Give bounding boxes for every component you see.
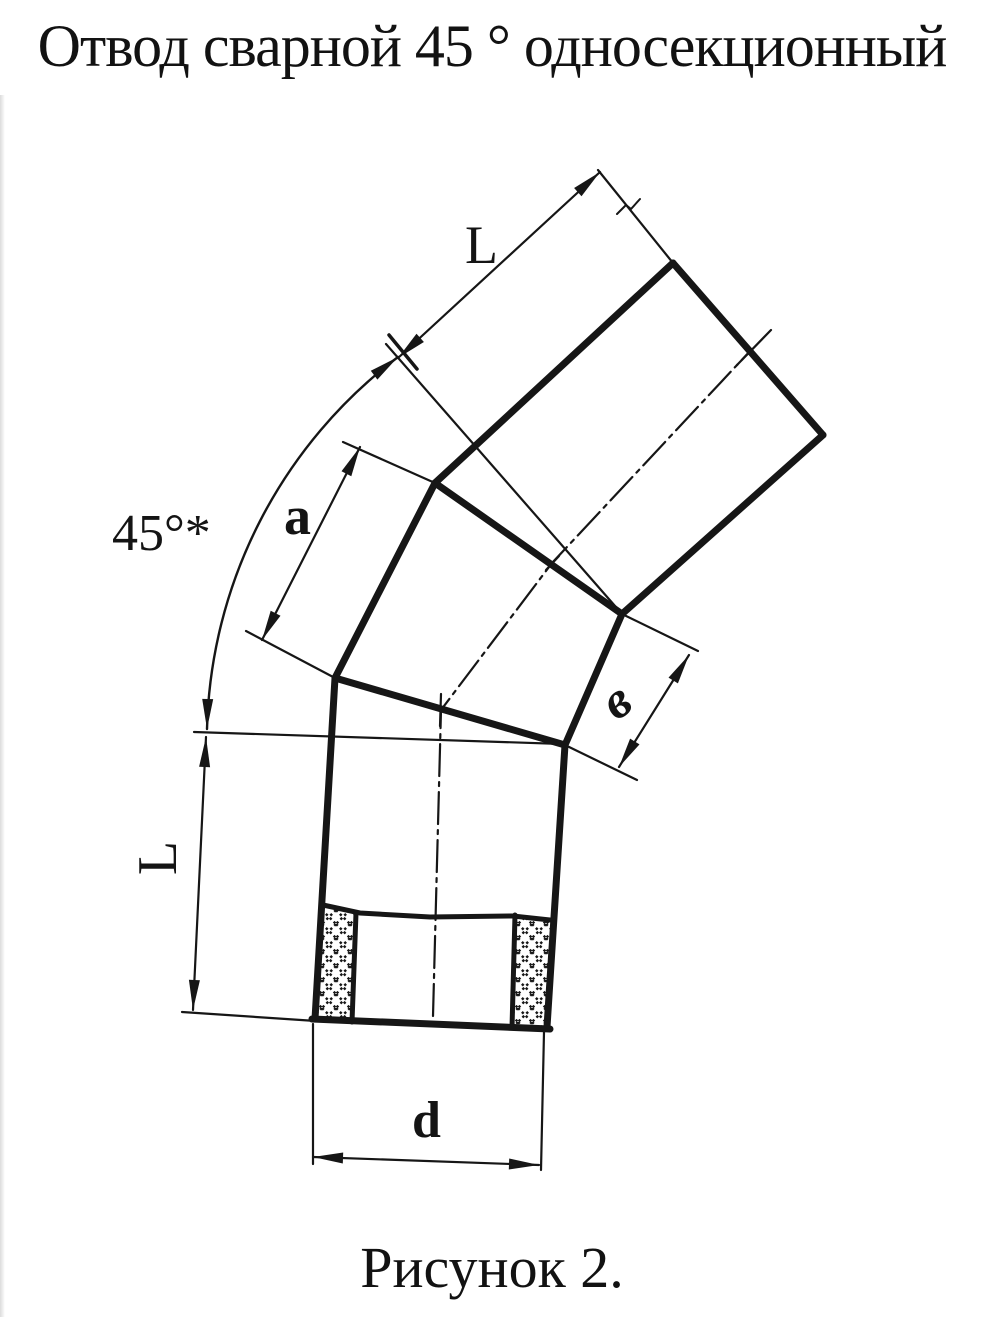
extension-line: [598, 170, 673, 263]
dimension-line: [262, 447, 360, 640]
socket-inner-wall-right: [512, 915, 515, 1028]
label-diameter-d: d: [412, 1092, 441, 1149]
label-length-top: L: [465, 215, 498, 275]
figure-caption: Рисунок 2.: [0, 1234, 984, 1301]
scanned-drawing-page: Отвод сварной 45 ° односекционный: [0, 0, 984, 1317]
elbow-drawing: L 45°* a в L d: [0, 0, 984, 1317]
extension-squiggle: [617, 199, 640, 214]
label-length-left: L: [127, 841, 189, 875]
upper-pipe-outline: [435, 263, 823, 614]
label-segment-end-v: в: [591, 671, 643, 731]
label-angle-45: 45°*: [112, 505, 211, 562]
arrowhead: [371, 357, 398, 380]
extension-line-bottom: [182, 1012, 316, 1021]
arrowhead: [342, 447, 361, 476]
extension-line: [246, 631, 335, 678]
centerline: [433, 330, 771, 1016]
socket-wall-hatch-left: [316, 906, 356, 1022]
middle-segment-outline: [335, 483, 622, 745]
dimension-a: [246, 442, 435, 678]
arrowhead: [199, 737, 210, 767]
arrowhead: [189, 980, 200, 1010]
dimension-line: [398, 172, 600, 358]
arrowhead: [202, 699, 213, 729]
dimension-label-group: L 45°* a в L d: [112, 215, 642, 1149]
extension-line-long: [386, 344, 622, 614]
arrowhead: [669, 655, 690, 683]
extension-line: [622, 614, 698, 651]
arrowhead: [619, 739, 640, 767]
arrowhead: [262, 611, 281, 640]
extension-line-top: [194, 732, 563, 744]
dimension-line: [313, 1157, 539, 1165]
extension-line-right: [541, 1032, 544, 1170]
label-segment-side-a: a: [284, 486, 311, 546]
weld-seam-lower: [335, 678, 565, 745]
dimension-L-left: [182, 732, 563, 1021]
dimension-line: [193, 737, 206, 1010]
extension-line: [343, 442, 435, 483]
socket-wall-hatch-right: [512, 915, 553, 1028]
